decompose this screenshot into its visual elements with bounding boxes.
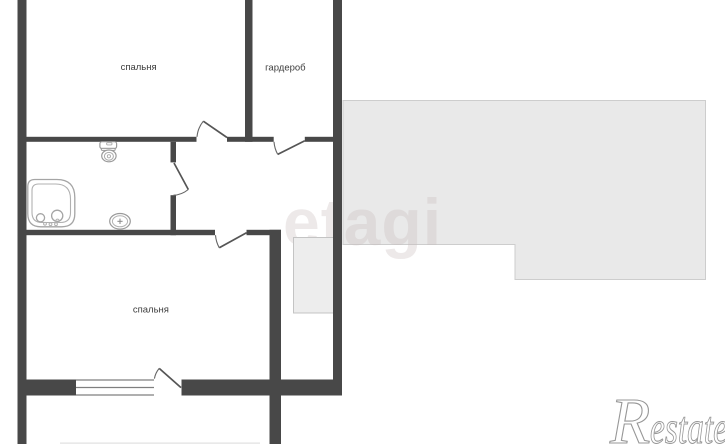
svg-text:estate: estate — [650, 402, 725, 444]
svg-text:R: R — [609, 385, 650, 444]
svg-text:спальня: спальня — [133, 305, 169, 316]
svg-text:гардероб: гардероб — [265, 63, 306, 74]
svg-text:спальня: спальня — [121, 62, 157, 73]
